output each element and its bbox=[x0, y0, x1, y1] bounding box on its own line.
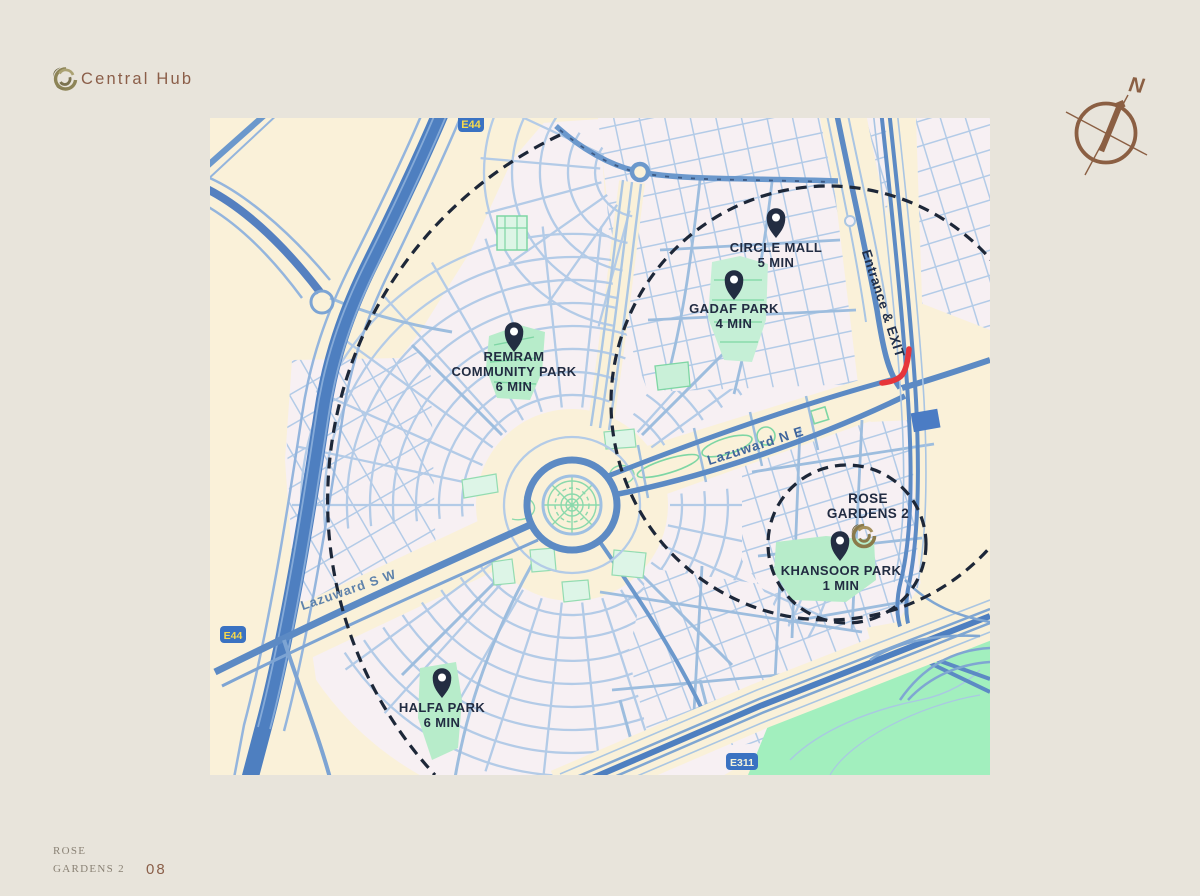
svg-text:E44: E44 bbox=[461, 119, 481, 131]
svg-text:ROSE: ROSE bbox=[848, 491, 888, 506]
svg-text:KHANSOOR PARK: KHANSOOR PARK bbox=[781, 563, 902, 578]
svg-text:GARDENS 2: GARDENS 2 bbox=[827, 506, 909, 521]
svg-text:08: 08 bbox=[146, 861, 167, 878]
svg-text:CIRCLE MALL: CIRCLE MALL bbox=[730, 240, 823, 255]
svg-text:5 MIN: 5 MIN bbox=[758, 255, 795, 270]
svg-text:4 MIN: 4 MIN bbox=[716, 316, 753, 331]
svg-text:GADAF PARK: GADAF PARK bbox=[689, 301, 779, 316]
svg-text:1 MIN: 1 MIN bbox=[823, 578, 860, 593]
svg-text:E311: E311 bbox=[730, 757, 754, 769]
svg-text:HALFA PARK: HALFA PARK bbox=[399, 700, 486, 715]
svg-text:6 MIN: 6 MIN bbox=[496, 379, 533, 394]
svg-text:E44: E44 bbox=[224, 630, 243, 642]
svg-text:COMMUNITY PARK: COMMUNITY PARK bbox=[451, 364, 576, 379]
svg-text:ROSE: ROSE bbox=[53, 845, 86, 857]
svg-text:GARDENS 2: GARDENS 2 bbox=[53, 863, 125, 875]
svg-text:6 MIN: 6 MIN bbox=[424, 715, 461, 730]
svg-text:REMRAM: REMRAM bbox=[484, 349, 545, 364]
svg-text:Central Hub: Central Hub bbox=[81, 70, 193, 88]
